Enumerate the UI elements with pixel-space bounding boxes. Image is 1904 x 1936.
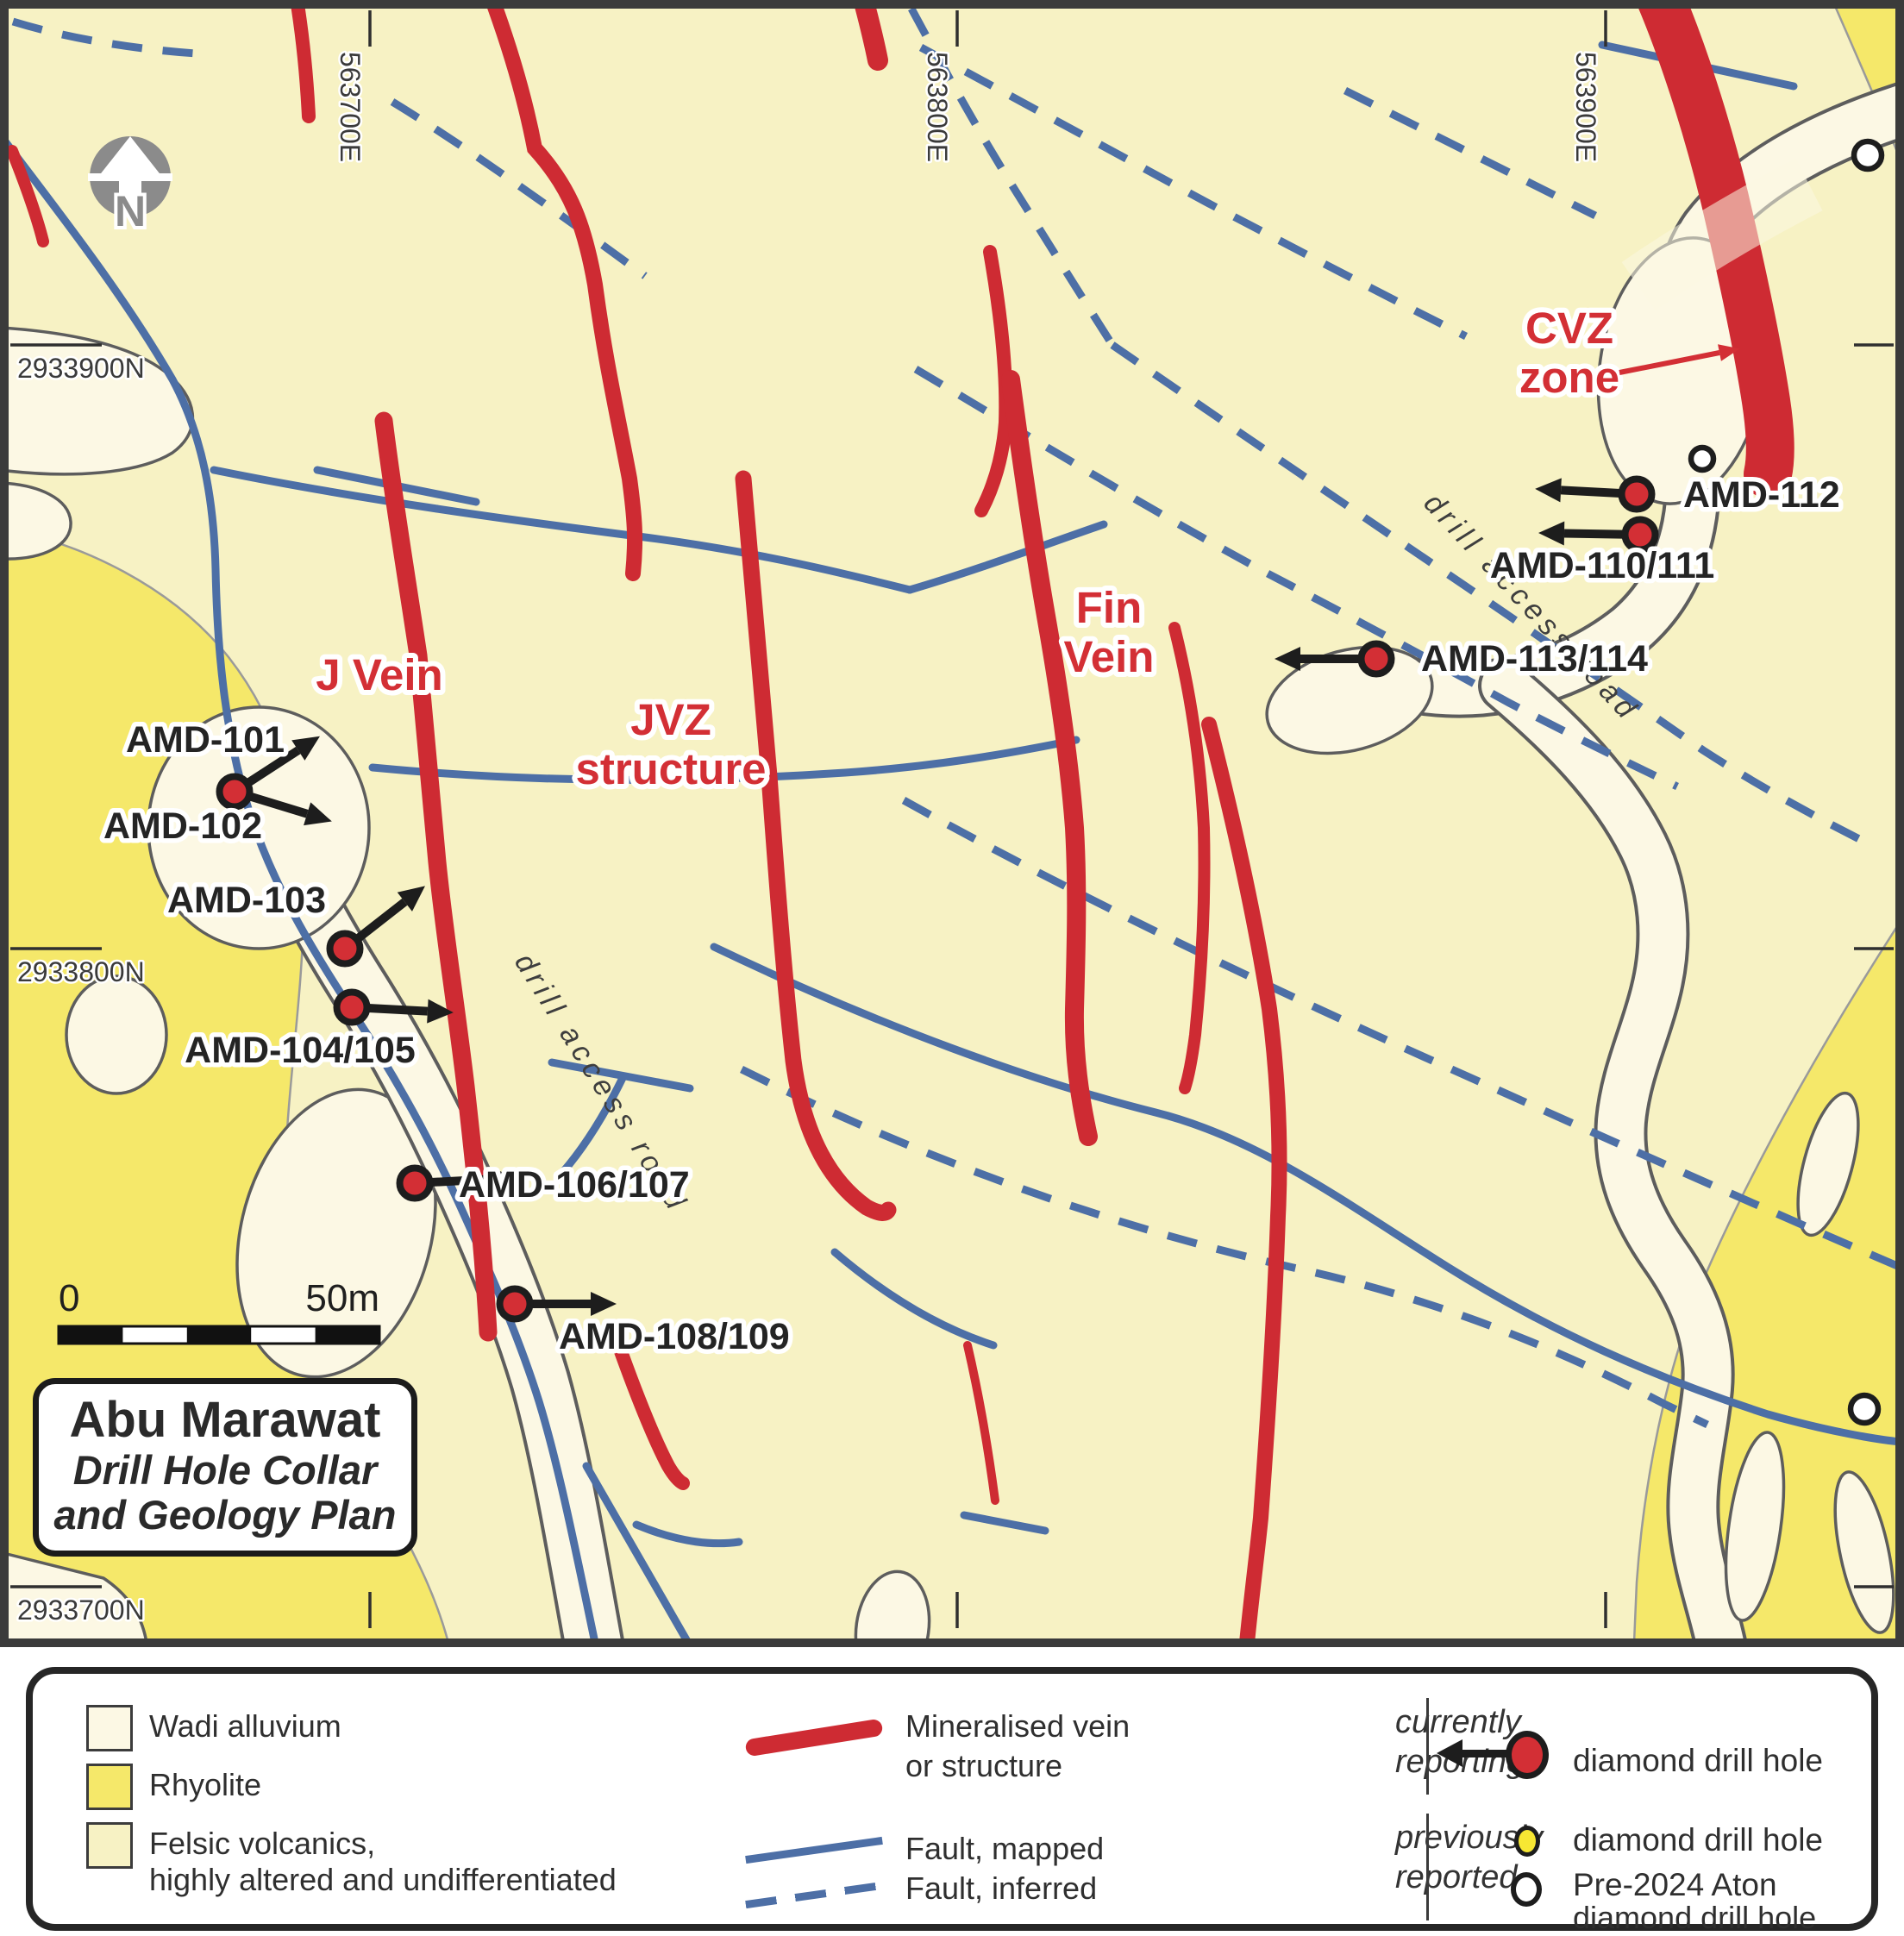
- drill-hole-marker-AMD-108/109: [500, 1289, 530, 1319]
- vein-label: Vein: [1064, 632, 1155, 681]
- scale-50m-label: 50m: [305, 1277, 379, 1319]
- legend-swatch-wadi: [86, 1705, 133, 1751]
- drill-hole-marker-AMD-101/102: [220, 777, 250, 807]
- vein-label: Fin: [1076, 583, 1142, 632]
- drill-hole-label: AMD-113/114: [1421, 638, 1648, 680]
- north-letter: N: [115, 187, 146, 235]
- map-subtitle-line2: and Geology Plan: [44, 1493, 406, 1538]
- legend-label-fault-inferred: Fault, inferred: [905, 1870, 1097, 1907]
- legend-swatch-felsic: [86, 1822, 133, 1869]
- drill-hole-marker-AMD-104/105: [337, 993, 367, 1023]
- drill-hole-label: AMD-102: [103, 805, 262, 847]
- legend-divider-current: [1426, 1698, 1429, 1795]
- pre2024-drill-hole: [1851, 1395, 1878, 1423]
- easting-label: 563800E: [922, 52, 953, 162]
- northing-label: 2933800N: [17, 956, 145, 987]
- drill-hole-marker-AMD-106/107: [400, 1168, 430, 1199]
- pre2024-drill-hole: [1691, 448, 1713, 470]
- legend-vein-swatch: [744, 1719, 883, 1757]
- legend-panel: Wadi alluvium Rhyolite Felsic volcanics,…: [26, 1667, 1878, 1931]
- drill-hole-label: AMD-101: [126, 719, 285, 761]
- drill-hole-label: AMD-106/107: [459, 1164, 690, 1206]
- legend-fault-mapped-swatch: [745, 1837, 883, 1864]
- legend-current-drillhole-icon: [1506, 1731, 1549, 1779]
- drill-hole-label: AMD-108/109: [559, 1316, 790, 1357]
- legend-pre2024-line2: diamond drill hole: [1573, 1900, 1816, 1936]
- legend-pre2024-drillhole-icon: [1511, 1872, 1542, 1907]
- easting-label: 563700E: [335, 52, 366, 162]
- northing-label: 2933900N: [17, 353, 145, 384]
- legend-fault-inferred-swatch: [745, 1882, 883, 1908]
- drill-hole-marker-AMD-103: [330, 934, 360, 964]
- vein-label: J Vein: [316, 650, 442, 699]
- drill-hole-marker-AMD-113/114: [1362, 644, 1392, 674]
- map-subtitle-line1: Drill Hole Collar: [44, 1448, 406, 1494]
- legend-label-wadi: Wadi alluvium: [149, 1708, 341, 1745]
- scale-bar: [59, 1326, 379, 1344]
- northing-label: 2933700N: [17, 1595, 145, 1626]
- legend-previous-item1: diamond drill hole: [1573, 1822, 1823, 1858]
- legend-pre2024-line1: Pre-2024 Aton: [1573, 1867, 1777, 1903]
- legend-previous-drillhole-icon: [1514, 1826, 1540, 1857]
- legend-previously-reported: previously reported: [1024, 1819, 1395, 1858]
- vein-label: JVZ: [630, 695, 711, 744]
- scale-zero-label: 0: [59, 1277, 79, 1319]
- legend-current-arrowline-icon: [1459, 1750, 1507, 1757]
- vein-label: structure: [575, 744, 766, 793]
- drill-hole-marker-AMD-112: [1622, 479, 1652, 510]
- pre2024-drill-hole: [1854, 141, 1882, 169]
- drill-hole-label: AMD-112: [1683, 474, 1840, 516]
- easting-label: 563900E: [1570, 52, 1601, 162]
- map-title: Abu Marawat: [44, 1393, 406, 1448]
- legend-label-vein2: or structure: [905, 1748, 1062, 1784]
- abu-marawat-map-figure: 563700E563800E563900E2933900N2933800N293…: [0, 0, 1904, 1936]
- legend-currently-reporting: currently reporting: [1024, 1703, 1395, 1743]
- legend-label-felsic2: highly altered and undifferentiated: [149, 1862, 617, 1898]
- legend-current-item: diamond drill hole: [1573, 1743, 1823, 1779]
- drill-hole-label: AMD-110/111: [1490, 545, 1715, 586]
- drill-hole-label: AMD-103: [167, 880, 326, 921]
- legend-label-rhyolite: Rhyolite: [149, 1767, 261, 1803]
- vein-label: CVZ: [1525, 304, 1613, 353]
- legend-divider-previous: [1426, 1814, 1429, 1920]
- wadi-blob-in-rhyolite: [66, 976, 166, 1093]
- drill-hole-label: AMD-104/105: [185, 1030, 416, 1071]
- legend-label-felsic: Felsic volcanics,: [149, 1826, 375, 1862]
- vein-label: zone: [1519, 353, 1619, 402]
- map-title-box: Abu Marawat Drill Hole Collar and Geolog…: [33, 1378, 417, 1557]
- legend-swatch-rhyolite: [86, 1764, 133, 1810]
